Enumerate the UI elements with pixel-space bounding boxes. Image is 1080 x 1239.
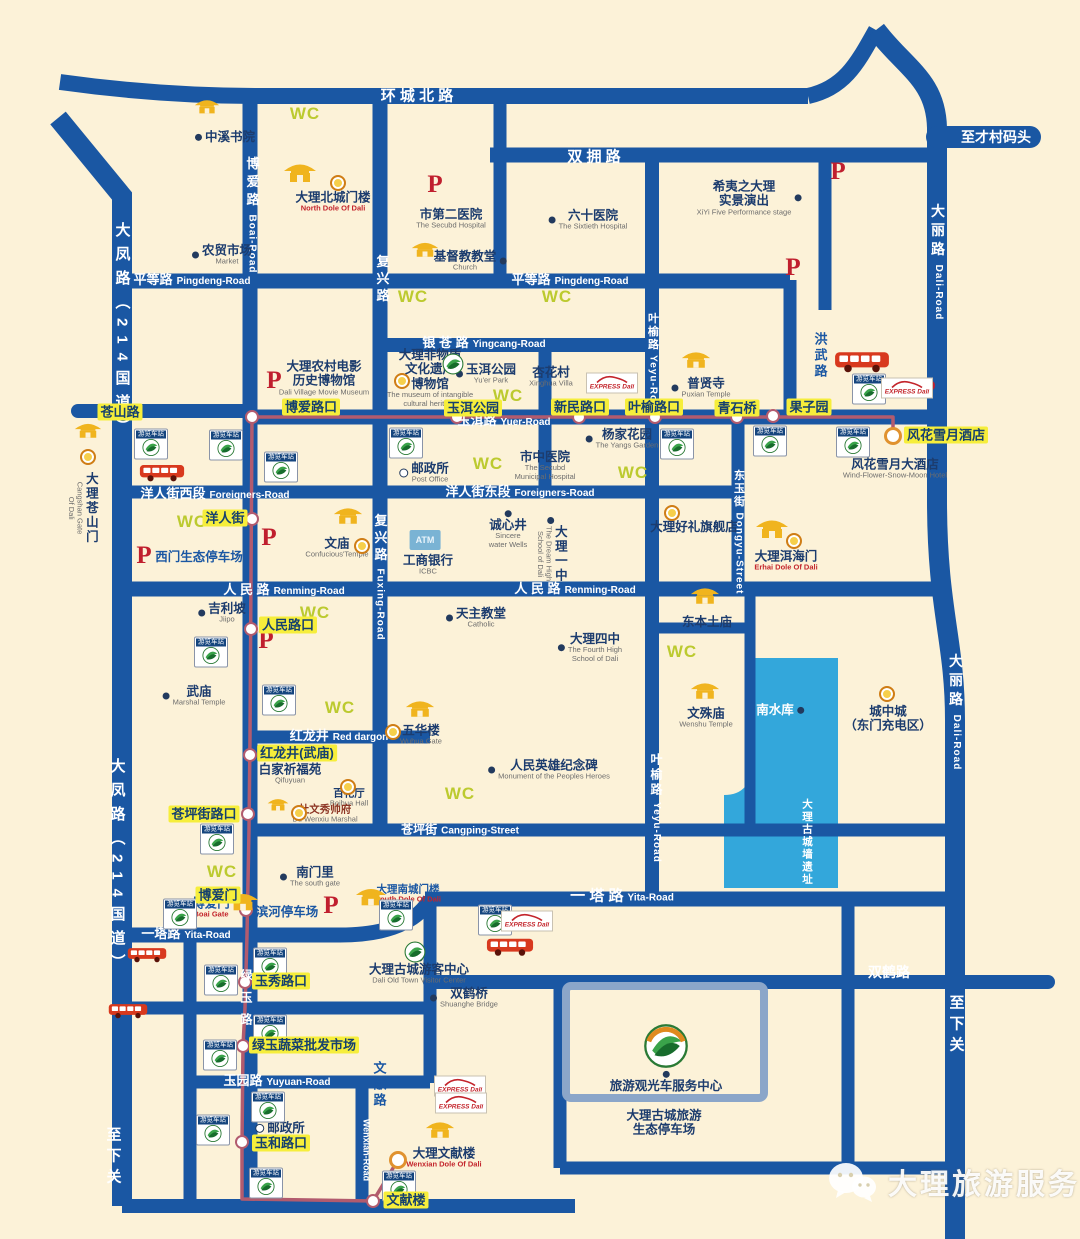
tour-logo-icon (142, 439, 160, 457)
dot-marker (499, 258, 506, 265)
road-name-en: Dali-Road (951, 715, 962, 771)
road-name-label: 至才村码头 (961, 130, 1031, 144)
bus-station-badge-title: 游览车站 (202, 826, 232, 834)
road-name-zh: 大丽路 (948, 654, 964, 711)
parking-icon: P (323, 892, 338, 920)
target-marker (80, 449, 96, 465)
gate-icon (267, 798, 289, 811)
poi-label: 希夷之大理 实景演出XiYi Five Performance stage (697, 179, 802, 216)
poi-text: 城中城 （东门充电区） (844, 705, 932, 734)
road-name-zh: 人 民 路 (223, 582, 269, 597)
route-stop-text: 玉和路口 (255, 1136, 307, 1151)
poi-text: 大理古城墙遗址 (801, 798, 813, 886)
poi-label: 玉洱公园Yu'er Park (456, 363, 516, 386)
poi-name-en: Dali Old Town Visitor Center (372, 977, 466, 986)
route-stop-text: 新民路口 (554, 400, 606, 415)
target-marker (291, 805, 307, 821)
poi-label: 大理四中The Fourth High School of Dali (558, 632, 622, 664)
poi-name-zh: 玉洱公园 (466, 363, 516, 377)
road-name-zh: 一 塔 路 (570, 888, 623, 905)
poi-name-en: Puxian Temple (681, 391, 730, 400)
poi-text: 大理一中The Dream High School of Dali (535, 525, 567, 583)
poi-name-zh: 大理古城游客中心 (369, 963, 469, 977)
wc-label: WC (667, 642, 697, 662)
road-name-label: 复兴路Fuxing-Road (374, 513, 387, 640)
poi-name-zh: 双鹤桥 (450, 987, 488, 1001)
road-name-en: Renming-Road (274, 586, 345, 597)
poi-text: 工商银行ICBC (403, 554, 453, 577)
poi-label: 大理苍山门Cangshan Gate Of Dali (66, 472, 98, 545)
bus-station-badge: 游览车站 (660, 429, 694, 460)
bus-icon (486, 937, 534, 957)
poi-name-en: The Yangs Garden (596, 442, 659, 451)
poi-label: 农贸市场Market (192, 244, 252, 267)
poi-label: 文殊庙Wenshu Temple (679, 707, 733, 730)
road-name-en: Red dargon (333, 732, 389, 743)
parking-icon: P (427, 171, 442, 199)
gate-icon (755, 518, 789, 538)
route-stop-label: 风花雪月酒店 (904, 427, 988, 444)
tour-logo-icon (272, 462, 290, 480)
route-stop-label: 新民路口 (551, 399, 609, 416)
bus-station-badge: 游览车站 (194, 637, 228, 668)
wechat-icon (826, 1160, 878, 1204)
bus-station-badge: 游览车站 (163, 899, 197, 930)
poi-text: 邮政所Post Office (411, 462, 449, 485)
poi-text: 天主教堂Catholic (456, 607, 506, 630)
road-name-zh: 复兴路 (373, 513, 388, 564)
poi-name-en: Sincere water Wells (489, 533, 528, 550)
poi-label: 工商银行ICBC (403, 554, 453, 577)
road-name-label: 双 拥 路 (567, 150, 620, 165)
poi-text: 吉利坡Jiipo (208, 602, 246, 625)
poi-text: 玉洱公园Yu'er Park (466, 363, 516, 386)
road-name-zh: 复兴路 (375, 255, 390, 306)
parking-text: P (323, 892, 338, 919)
road-name-label: 红龙井Red dargon (290, 729, 389, 743)
car-icon (443, 1078, 477, 1087)
poi-label: 普贤寺Puxian Temple (671, 377, 730, 400)
dot-marker (446, 615, 453, 622)
poi-text: 文殊庙Wenshu Temple (679, 707, 733, 730)
gate-icon (405, 699, 435, 717)
tour-logo-icon (442, 353, 464, 375)
poi-label: 吉利坡Jiipo (198, 602, 246, 625)
express-text: EXPRESS Dali (590, 384, 634, 392)
poi-name-zh: 五华楼 (402, 724, 440, 738)
poi-label: 杏花村Xinghua Villa (529, 366, 573, 389)
bus-station-badge-title: 游览车站 (206, 967, 236, 975)
bus-station-badge-title: 游览车站 (255, 950, 285, 958)
dot-marker (505, 510, 512, 517)
route-stop-text: 苍山路 (100, 405, 139, 420)
poi-label: 大理北城门楼North Dole Of Dali (295, 191, 370, 214)
poi-name-en: The Fourth High School of Dali (568, 647, 622, 664)
gate-icon (74, 422, 102, 438)
road-side-label: 洪武路 (811, 332, 830, 380)
dot-marker (549, 217, 556, 224)
poi-name-zh: 工商银行 (403, 554, 453, 568)
poi-name-zh: 市中医院 (520, 450, 570, 464)
road-name-en: Yita-Road (184, 930, 230, 941)
poi-name-zh: 大理四中 (570, 632, 620, 646)
road-name-label: 大丽路Dali-Road (949, 654, 963, 771)
target-marker (664, 505, 680, 521)
road-name-label: 玉园路Yuyuan-Road (224, 1074, 331, 1088)
route-stop-text: 博爱门 (198, 888, 237, 903)
target-marker (354, 538, 370, 554)
wc-text: WC (325, 698, 355, 717)
road-name-label: 大丽路Dali-Road (931, 204, 945, 321)
poi-text: 邮政所 (267, 1121, 305, 1135)
road-side-label-text: 洪武路 (813, 332, 828, 380)
poi-name-en: XiYi Five Performance stage (697, 208, 792, 217)
road-name-label: 苍坪街Cangping-Street (401, 824, 519, 837)
poi-text: 双鹤桥Shuanghe Bridge (440, 987, 498, 1010)
parking-icon: P (136, 542, 151, 570)
poi-name-zh: 西门生态停车场 (155, 550, 243, 564)
bus-icon (127, 947, 167, 964)
wc-text: WC (542, 287, 572, 306)
dot-marker (548, 517, 555, 524)
tour-logo-icon (212, 975, 230, 993)
open-dot-marker (399, 469, 408, 478)
poi-label: 大理文献楼Wenxian Dole Of Dali (406, 1147, 481, 1170)
poi-label: 市第二医院The Secubd Hospital (416, 208, 486, 231)
road-name-en: Fuxing-Road (375, 568, 386, 640)
poi-text: 滨河停车场 (256, 905, 319, 919)
atm-box: ATM (410, 530, 441, 550)
wc-text: WC (618, 463, 648, 482)
poi-name-en: Erhai Dole Of Dali (754, 564, 817, 573)
wc-label: WC (542, 287, 572, 307)
poi-text: 希夷之大理 实景演出XiYi Five Performance stage (697, 179, 792, 216)
gate-icon (425, 1120, 455, 1138)
poi-text: 大理四中The Fourth High School of Dali (568, 632, 622, 664)
poi-name-en: ICBC (419, 568, 437, 577)
poi-name-zh: 大理苍山门 (83, 472, 97, 545)
wc-label: WC (207, 862, 237, 882)
route-stop-label: 玉和路口 (252, 1135, 310, 1152)
poi-name-zh: 大理北城门楼 (295, 191, 370, 205)
poi-text: 旅游观光车服务中心 (610, 1079, 723, 1093)
dot-marker (280, 874, 287, 881)
route-stop-label: 果子园 (786, 399, 831, 416)
poi-label: 大理古城墙遗址 (801, 798, 813, 886)
car-icon (595, 375, 629, 384)
route-stop-label: 洋人街 (202, 510, 247, 527)
bus-station-badge: 游览车站 (379, 900, 413, 931)
wc-text: WC (207, 862, 237, 881)
bus-station-badge-title: 游览车站 (136, 431, 166, 439)
bus-station-badge-title: 游览车站 (838, 429, 868, 437)
poi-name-zh: 吉利坡 (208, 602, 246, 616)
poi-name-zh: 普贤寺 (687, 377, 725, 391)
route-stop-label: 玉秀路口 (252, 973, 310, 990)
road-name-en: Dali-Road (933, 265, 944, 321)
wc-text: WC (667, 642, 697, 661)
target-marker (879, 686, 895, 702)
road-name-en: Pingdeng-Road (555, 276, 629, 287)
poi-label: 大理好礼旗舰店 (650, 520, 738, 534)
bus-station-badge-title: 游览车站 (255, 1017, 285, 1025)
poi-name-en: North Dole Of Dali (301, 205, 366, 214)
road-name-label: 人 民 路Renming-Road (514, 582, 635, 596)
poi-name-en: Cangshan Gate Of Dali (66, 482, 83, 535)
dot-marker (794, 195, 801, 202)
poi-label: 中溪书院 (195, 130, 255, 144)
tour-service-center-logo (643, 1023, 689, 1069)
poi-label: 人民英雄纪念碑Monument of the Peoples Heroes (488, 759, 610, 782)
express-rental-badge: EXPRESS Dali (435, 1093, 487, 1114)
poi-name-zh: 诚心井 (489, 518, 527, 532)
bus-icon (139, 463, 185, 482)
road-name-en: Cangping-Street (441, 826, 519, 837)
poi-name-en: The south gate (290, 880, 340, 889)
express-text: EXPRESS Dali (439, 1104, 483, 1112)
road-name-en: Foreigners-Road (515, 488, 595, 499)
poi-name-zh: 东本土庙 (682, 615, 732, 629)
road-name-zh: 平等路 (134, 272, 173, 287)
express-text: EXPRESS Dali (505, 922, 549, 930)
dot-marker (586, 436, 593, 443)
poi-name-zh: 六十医院 (568, 209, 618, 223)
poi-name-en: The Dream High School of Dali (535, 526, 552, 581)
road-name-zh: 红龙井 (290, 728, 329, 743)
road-name-zh: 大丽路 (930, 204, 946, 261)
parking-icon: P (785, 254, 800, 282)
poi-label: 邮政所 (255, 1121, 305, 1135)
express-text: EXPRESS Dali (885, 389, 929, 397)
dali-old-town-tourist-map: 环 城 北 路双 拥 路平等路Pingdeng-Road平等路Pingdeng-… (0, 0, 1080, 1239)
poi-text: 市第二医院The Secubd Hospital (416, 208, 486, 231)
poi-name-zh: 天主教堂 (456, 607, 506, 621)
poi-name-zh: 大理好礼旗舰店 (650, 520, 738, 534)
poi-text: 农贸市场Market (202, 244, 252, 267)
bus-station-badge-title: 游览车站 (251, 1170, 281, 1178)
wc-label: WC (398, 287, 428, 307)
poi-text: 大理洱海门Erhai Dole Of Dali (754, 550, 817, 573)
car-icon (444, 1095, 478, 1104)
poi-name-zh: 滨河停车场 (256, 905, 319, 919)
dot-marker (558, 645, 565, 652)
poi-label: 邮政所Post Office (399, 462, 449, 485)
poi-name-zh: 风花雪月大酒店 (851, 458, 939, 472)
bus-station-badge: 游览车站 (200, 824, 234, 855)
road-name-zh: 玉园路 (224, 1073, 263, 1088)
poi-text: 五华楼Wuhua Gate (400, 724, 442, 747)
road-side-label-text: 文献路 (372, 1061, 387, 1109)
road-name-zh: Wenxian-Road (362, 1119, 372, 1181)
poi-text: 大理农村电影 历史博物馆Dali Village Movie Museum (279, 359, 369, 396)
poi-text: 大理北城门楼North Dole Of Dali (295, 191, 370, 214)
road-name-zh: 东玉街 (733, 470, 745, 509)
gate-icon (681, 350, 711, 368)
route-stop-text: 果子园 (789, 400, 828, 415)
road-name-zh: 洋人街西段 (140, 486, 205, 501)
poi-name-en: Monument of the Peoples Heroes (498, 773, 610, 782)
tour-logo-icon (204, 1125, 222, 1143)
poi-name-zh: 大理古城旅游 生态停车场 (626, 1109, 701, 1138)
car-icon (890, 380, 924, 389)
road-name-label: 人 民 路Renming-Road (223, 583, 344, 597)
gate-icon (283, 162, 317, 182)
poi-text: 基督教教堂Church (434, 250, 497, 273)
poi-text: 大理文献楼Wenxian Dole Of Dali (406, 1147, 481, 1170)
poi-text: 大理古城游客中心Dali Old Town Visitor Center (369, 963, 469, 986)
route-stop-text: 风花雪月酒店 (907, 428, 985, 443)
road-name-label: 一 塔 路Yita-Road (570, 889, 674, 904)
tour-logo-icon (844, 437, 862, 455)
dot-marker (488, 767, 495, 774)
bus-station-badge-title: 游览车站 (264, 687, 294, 695)
bus-station-badge-title: 游览车站 (165, 901, 195, 909)
route-stop-text: 玉洱公园 (447, 401, 499, 416)
poi-name-zh: 大理洱海门 (755, 550, 818, 564)
poi-label: 六十医院The Sixtieth Hospital (549, 209, 628, 232)
wechat-watermark: 大理旅游服务 (826, 1160, 1080, 1204)
bus-station-badge-title: 游览车站 (391, 430, 421, 438)
poi-label: 风花雪月大酒店Wind-Flower-Snow-Moon Hotel (843, 458, 947, 481)
wc-text: WC (290, 104, 320, 123)
road-name-zh: 至下关 (948, 995, 965, 1058)
tour-logo-icon (270, 695, 288, 713)
bus-station-badge: 游览车站 (209, 430, 243, 461)
road-name-label: Wenxian-Road (362, 1119, 371, 1181)
route-stop-label: 文献楼 (383, 1192, 428, 1209)
poi-text: 杏花村Xinghua Villa (529, 366, 573, 389)
bus-station-badge: 游览车站 (753, 426, 787, 457)
watermark-title: 大理旅游服务 (888, 1161, 1080, 1203)
poi-name-en: Church (453, 264, 477, 273)
dot-marker (671, 385, 678, 392)
dot-marker (192, 252, 199, 259)
road-name-zh: 博爱路 (245, 157, 260, 211)
road-name-label: 洋人街西段Foreigners-Road (140, 487, 289, 501)
route-stop-label: 玉洱公园 (444, 400, 502, 417)
gate-icon (333, 506, 363, 524)
route-stop-text: 青石桥 (717, 401, 756, 416)
bus-icon (108, 1003, 148, 1020)
poi-name-en: Wenshu Temple (679, 721, 733, 730)
road-name-zh: 平等路 (512, 272, 551, 287)
poi-name-zh: 城中城 （东门充电区） (844, 705, 932, 734)
poi-name-en: Wenxian Dole Of Dali (406, 1161, 481, 1170)
bus-station-badge: 游览车站 (204, 965, 238, 996)
tour-logo-icon (404, 941, 426, 963)
poi-text: 东本土庙 (682, 615, 732, 629)
road-name-zh: 双 拥 路 (567, 149, 620, 166)
wc-text: WC (398, 287, 428, 306)
poi-name-en: Jiipo (219, 616, 234, 625)
wc-label: WC (445, 784, 475, 804)
tour-logo-icon (668, 439, 686, 457)
road-name-label: 至下关 (949, 995, 964, 1058)
parking-text: P (830, 158, 845, 185)
tour-logo-icon (860, 384, 878, 402)
route-stop-label: 绿玉蔬菜批发市场 (249, 1037, 359, 1054)
route-stop-label: 博爱门 (195, 887, 240, 904)
wc-label: WC (473, 454, 503, 474)
poi-label: 白家祈福苑Qifuyuan (259, 763, 322, 786)
tour-logo-icon (397, 438, 415, 456)
bus-station-badge: 游览车站 (836, 427, 870, 458)
road-name-label: 大凤路（214国道） (110, 758, 125, 978)
poi-name-en: Qifuyuan (275, 777, 305, 786)
route-stop-text: 红龙井(武庙) (260, 746, 334, 761)
poi-name-zh: 大理一中 (552, 525, 566, 583)
poi-label: 城中城 （东门充电区） (844, 705, 932, 734)
poi-name-en: The Sixtieth Hospital (559, 223, 628, 232)
dot-marker (163, 693, 170, 700)
gate-icon (690, 681, 720, 699)
tour-logo-icon (217, 440, 235, 458)
dot-marker (430, 995, 437, 1002)
bus-station-badge-title: 游览车站 (211, 432, 241, 440)
poi-text: 中溪书院 (205, 130, 255, 144)
poi-name-zh: 农贸市场 (202, 244, 252, 258)
road-name-en: Yita-Road (628, 893, 674, 904)
parking-text: P (136, 542, 151, 569)
tour-logo-icon (257, 1178, 275, 1196)
bus-station-badge-title: 游览车站 (205, 1042, 235, 1050)
poi-name-en: The Secubd Municipal Hospital (515, 465, 576, 482)
road-side-label: 文献路 (370, 1061, 389, 1109)
poi-text: 武庙Marshal Temple (173, 685, 226, 708)
poi-label: 旅游观光车服务中心 (610, 1071, 723, 1093)
route-stop-text: 人民路口 (262, 618, 314, 633)
road-name-en: Yuyuan-Road (267, 1077, 331, 1088)
tour-logo-icon (202, 647, 220, 665)
tour-logo-icon (208, 834, 226, 852)
road-name-en: Yingcang-Road (473, 339, 546, 350)
bus-station-badge-title: 游览车站 (854, 376, 884, 384)
poi-name-zh: 邮政所 (267, 1121, 305, 1135)
bus-station-badge-title: 游览车站 (755, 428, 785, 436)
poi-name-zh: 杨家花园 (602, 428, 652, 442)
road-name-zh: 洋人街东段 (445, 484, 510, 499)
road-name-zh: 叶榆路 (647, 312, 659, 351)
poi-text: 大理苍山门Cangshan Gate Of Dali (66, 472, 98, 545)
poi-name-zh: 南门里 (296, 866, 334, 880)
road-name-label: 平等路Pingdeng-Road (134, 273, 251, 287)
road-name-en: Pingdeng-Road (177, 276, 251, 287)
tour-logo-icon (171, 909, 189, 927)
poi-name-en: The Secubd Hospital (416, 222, 486, 231)
poi-name-en: Yu'er Park (474, 377, 508, 386)
poi-label: 双鹤桥Shuanghe Bridge (430, 987, 498, 1010)
poi-text: 西门生态停车场 (155, 550, 243, 564)
poi-label: 南水库 (756, 703, 804, 717)
gate-icon (194, 98, 220, 113)
route-stop-label: 博爱路口 (282, 399, 340, 416)
poi-text: 大理好礼旗舰店 (650, 520, 738, 534)
road-name-label: 环 城 北 路 (381, 89, 454, 104)
bus-station-badge: 游览车站 (389, 428, 423, 459)
poi-name-en: Shuanghe Bridge (440, 1001, 498, 1010)
road-name-label: 至下关 (106, 1127, 121, 1190)
bus-station-badge-title: 游览车站 (198, 1117, 228, 1125)
poi-label: 武庙Marshal Temple (163, 685, 226, 708)
poi-label: 南门里The south gate (280, 866, 340, 889)
road-name-zh: 叶榆路 (649, 753, 663, 798)
bus-station-badge-title: 游览车站 (253, 1094, 283, 1102)
poi-name-en: Market (216, 258, 239, 267)
atm-text: ATM (416, 535, 435, 545)
tour-logo-icon (259, 1102, 277, 1120)
road-name-label: 复兴路 (376, 255, 389, 306)
poi-name-en: Wuhua Gate (400, 738, 442, 747)
